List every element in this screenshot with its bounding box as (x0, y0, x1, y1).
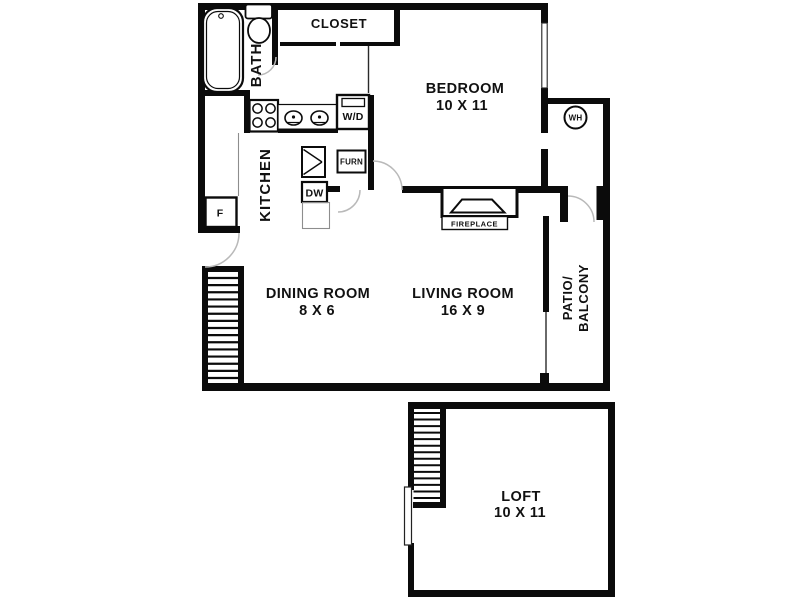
dining-room-dims: 8 X 6 (299, 303, 335, 319)
refrigerator-label: F (217, 208, 224, 220)
kitchen-fixtures: W/D FURN DW F (206, 95, 370, 229)
floor-plan-svg: W/D FURN DW F WH FI (0, 0, 800, 600)
bedroom-dims: 10 X 11 (436, 98, 488, 114)
washer-dryer: W/D (337, 95, 369, 129)
tub-drain (219, 14, 224, 19)
kitchen-door-arc (338, 190, 360, 212)
loft-stair-treads (414, 413, 441, 498)
bath-label: BATH (248, 43, 265, 88)
water-heater: WH (565, 107, 587, 129)
furnace: FURN (338, 151, 366, 173)
patio-label-line2: BALCONY (576, 264, 591, 332)
hall-door-arc (373, 161, 402, 190)
pantry-cabinet (302, 147, 325, 177)
closet-label: CLOSET (311, 16, 367, 31)
washer-dryer-label: W/D (342, 111, 363, 123)
patio-label-line1: PATIO/ (560, 276, 575, 320)
loft-label: LOFT (501, 489, 540, 505)
living-room-dims: 16 X 9 (441, 303, 485, 319)
stove (250, 100, 279, 132)
entry-stairs (202, 266, 244, 388)
floor-plan-page: W/D FURN DW F WH FI (0, 0, 800, 600)
dining-room-label: DINING ROOM (266, 286, 370, 302)
bedroom-window (542, 23, 547, 88)
loft-railing (405, 487, 412, 545)
bedroom-label: BEDROOM (426, 81, 505, 97)
stair-treads (207, 278, 241, 378)
burner-icon (253, 118, 262, 127)
toilet-bowl (248, 18, 270, 43)
dishwasher: DW (302, 182, 327, 202)
counter-outline (303, 203, 330, 229)
fireplace: FIREPLACE (442, 188, 517, 230)
loft-stairs (413, 409, 446, 508)
refrigerator: F (206, 198, 237, 228)
burner-icon (266, 118, 275, 127)
burner-icon (266, 104, 275, 113)
toilet-tank (246, 5, 273, 19)
living-room-label: LIVING ROOM (412, 286, 514, 302)
water-heater-label: WH (569, 114, 583, 123)
entry-door-arc (205, 233, 239, 267)
loft-dims: 10 X 11 (494, 505, 546, 521)
dishwasher-label: DW (306, 188, 324, 200)
sink-counter (278, 105, 338, 134)
patio-door-arc (568, 196, 594, 222)
kitchen-label: KITCHEN (257, 148, 274, 222)
fireplace-label: FIREPLACE (451, 220, 498, 229)
furnace-label: FURN (340, 158, 363, 167)
burner-icon (253, 104, 262, 113)
